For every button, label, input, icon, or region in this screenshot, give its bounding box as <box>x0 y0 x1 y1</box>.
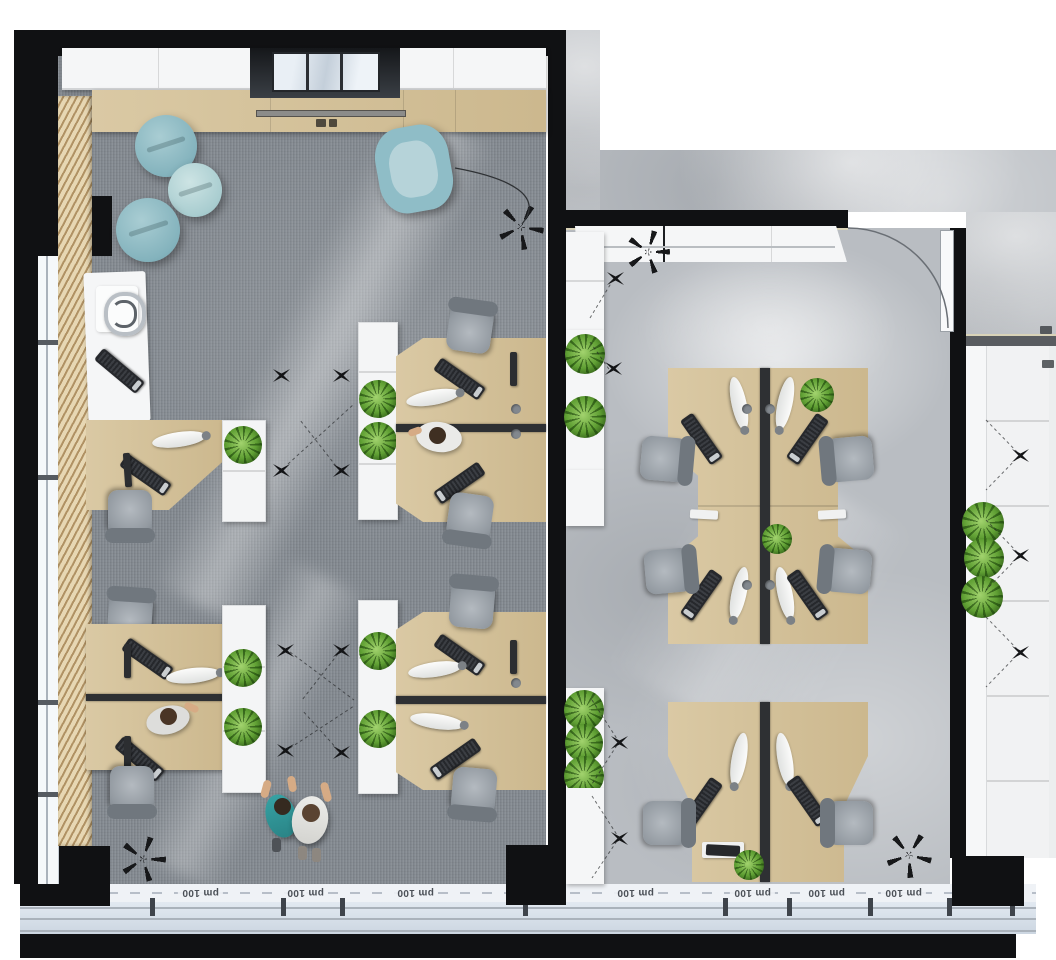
desk-phone <box>510 640 517 674</box>
laptop <box>706 844 741 857</box>
desk-plant <box>734 850 764 880</box>
storage-pedestal <box>222 605 266 793</box>
facade-glazing-band <box>20 902 1036 934</box>
task-chair <box>643 801 689 845</box>
task-chair <box>445 491 495 543</box>
wall-left <box>14 30 38 884</box>
facade-module-label: pm 100 <box>283 887 328 897</box>
console-inscription-mark <box>316 119 326 127</box>
facade-module-label: pm 100 <box>881 887 926 897</box>
block-bottom-right <box>952 856 1024 906</box>
cable-grommet <box>742 404 752 414</box>
desk-cable-spine <box>760 702 770 882</box>
corridor-plant <box>964 538 1004 578</box>
window-mullion <box>868 898 873 916</box>
facade-base-band <box>20 934 1016 958</box>
console-inscription-mark <box>329 119 337 127</box>
desk-plant <box>359 632 397 670</box>
desk-phone <box>510 352 517 386</box>
window-mullion <box>723 898 728 916</box>
facade-module-label: pm 100 <box>393 887 438 897</box>
cable-grommet <box>511 429 521 439</box>
block-bottom-center <box>506 845 566 905</box>
wall-divider <box>548 30 566 884</box>
storage-pedestal <box>358 322 398 520</box>
storage-pedestal <box>358 600 398 794</box>
task-chair <box>448 580 496 630</box>
desk-tray <box>818 509 846 519</box>
standing-person-white <box>288 778 338 864</box>
facade-module-label: pm 100 <box>804 887 849 897</box>
corridor-floor-horizontal <box>600 150 1056 212</box>
cabinet <box>566 470 604 526</box>
cable-grommet <box>511 404 521 414</box>
task-chair <box>445 303 495 355</box>
seated-person <box>146 702 192 736</box>
window-mullion <box>340 898 345 916</box>
task-chair <box>639 435 689 483</box>
cable-grommet <box>765 580 775 590</box>
planter-plant <box>564 396 606 438</box>
lounge-pouf <box>168 163 222 217</box>
task-chair <box>827 801 873 845</box>
task-chair <box>110 766 154 812</box>
seated-person <box>414 418 464 454</box>
facade-module-label: pm 100 <box>613 887 658 897</box>
task-chair <box>825 435 875 483</box>
skylight-recess <box>250 48 400 98</box>
left-window-strip <box>38 256 59 884</box>
edge-text-fragment <box>1040 326 1052 334</box>
desk-plant <box>359 380 397 418</box>
desk-plant <box>800 378 834 412</box>
task-chair <box>450 766 498 816</box>
desk-phone <box>124 644 131 678</box>
block-bottom-left <box>20 846 110 906</box>
window-mullion <box>787 898 792 916</box>
corridor-floor-right <box>966 212 1056 334</box>
corridor-plant <box>961 576 1003 618</box>
desk-cable-spine <box>396 696 546 704</box>
facade-module-label: pm 100 <box>178 887 223 897</box>
desk-plant <box>359 710 397 748</box>
cable-grommet <box>511 678 521 688</box>
desk-plant <box>359 422 397 460</box>
window-mullion <box>281 898 286 916</box>
desk-cable-spine <box>86 694 236 701</box>
desk-plant <box>224 426 262 464</box>
task-chair <box>643 547 693 595</box>
desk-plant <box>224 649 262 687</box>
console-rail <box>256 110 406 117</box>
window-mullion <box>150 898 155 916</box>
lounge-pouf <box>116 198 180 262</box>
desk-tray <box>690 509 718 519</box>
door-leaf <box>940 230 954 332</box>
floor-plan-canvas: pm 100 pm 100 pm 100 pm 100 pm 100 pm 10… <box>0 0 1056 960</box>
chrome-chair <box>104 292 146 336</box>
wall-mounted-unit <box>575 226 847 262</box>
cable-grommet <box>742 580 752 590</box>
task-chair <box>823 547 873 595</box>
edge-text-fragment <box>1042 360 1054 368</box>
facade-module-label: pm 100 <box>730 887 775 897</box>
desk-plant <box>762 524 792 554</box>
planter-plant <box>565 334 605 374</box>
skylight-window <box>272 52 380 92</box>
cabinet <box>566 232 604 330</box>
cabinet <box>566 788 604 884</box>
corridor-floor-vertical <box>566 30 600 212</box>
cable-grommet <box>765 404 775 414</box>
desk-plant <box>224 708 262 746</box>
task-chair <box>108 490 152 536</box>
desk-phone <box>124 736 131 770</box>
